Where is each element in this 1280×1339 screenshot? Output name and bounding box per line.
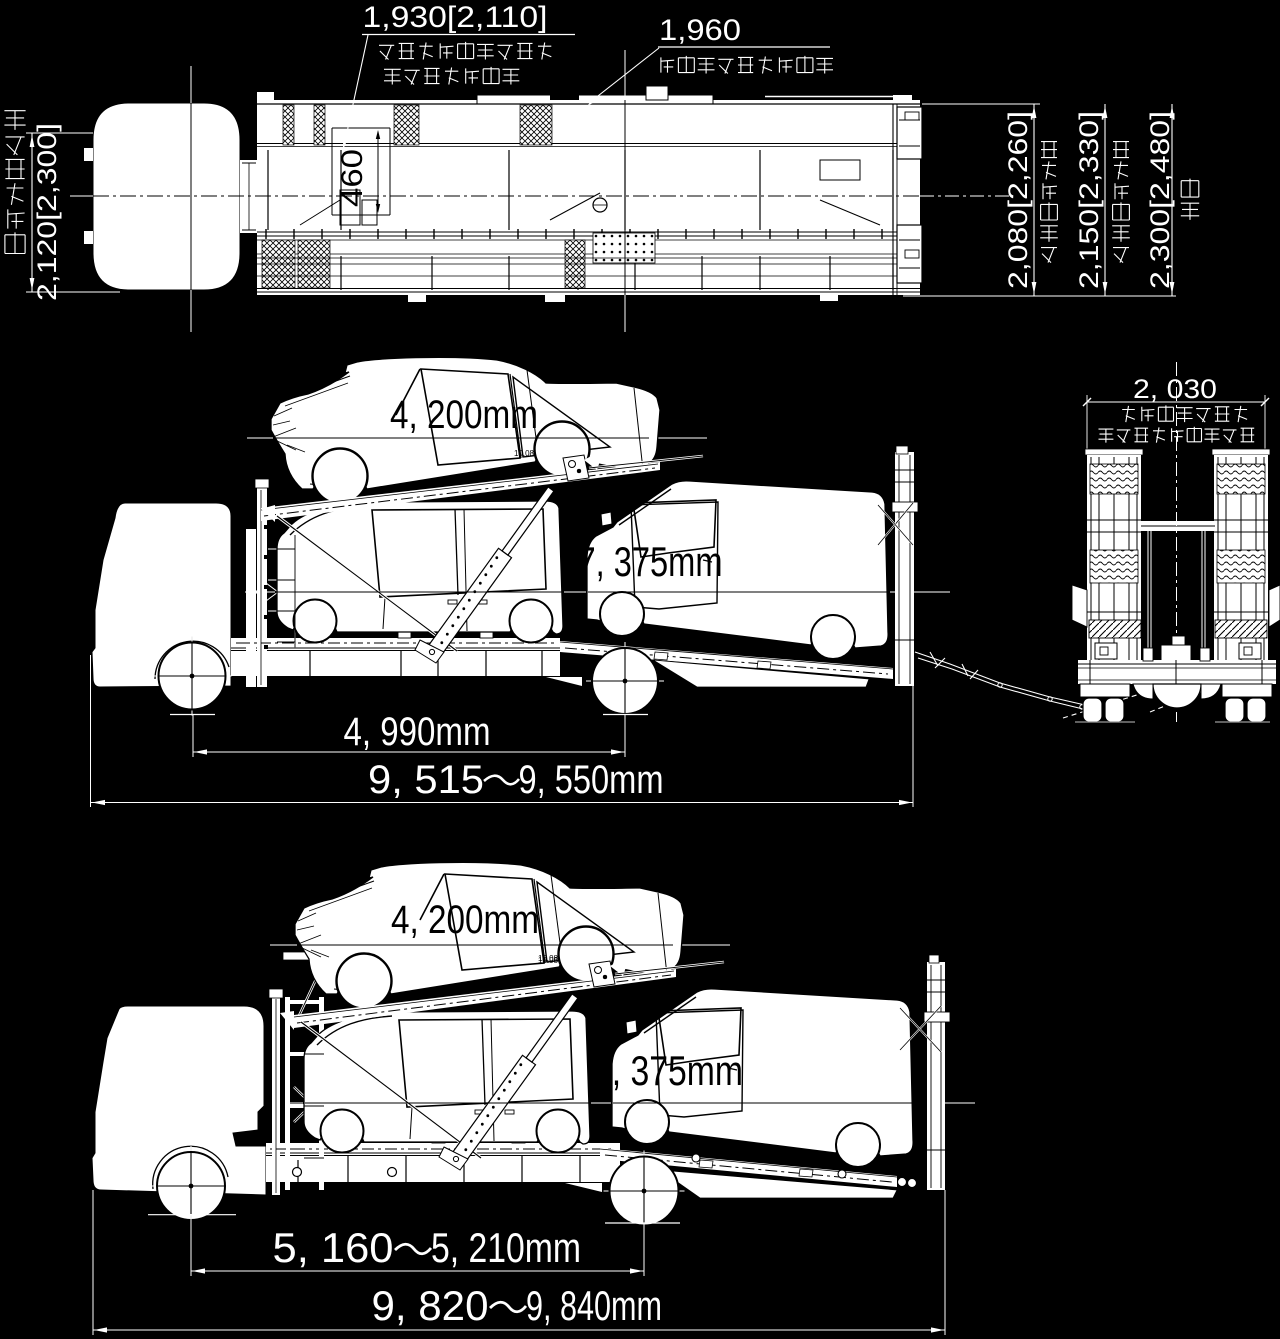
svg-text:10.08: 10.08 xyxy=(538,956,559,965)
svg-text:4, 200mm: 4, 200mm xyxy=(390,393,538,437)
svg-text:2,080[2,260]: 2,080[2,260] xyxy=(1003,111,1033,289)
svg-text:2,300[2,480]: 2,300[2,480] xyxy=(1145,111,1175,289)
svg-text:4, 200mm: 4, 200mm xyxy=(391,898,539,942)
svg-text:9, 550mm: 9, 550mm xyxy=(519,758,664,802)
svg-text:1,960: 1,960 xyxy=(659,14,741,47)
svg-text:4, 990mm: 4, 990mm xyxy=(344,710,491,754)
svg-text:5, 210mm: 5, 210mm xyxy=(431,1224,581,1271)
svg-text:2,150[2,330]: 2,150[2,330] xyxy=(1074,111,1104,289)
svg-text:7, 375mm: 7, 375mm xyxy=(578,538,723,585)
svg-text:2, 030: 2, 030 xyxy=(1133,374,1217,404)
svg-text:9, 515: 9, 515 xyxy=(368,758,484,802)
svg-text:1,930[2,110]: 1,930[2,110] xyxy=(363,1,548,34)
svg-text:9, 840mm: 9, 840mm xyxy=(526,1282,662,1329)
svg-text:9, 820: 9, 820 xyxy=(372,1282,489,1329)
svg-text:2,120[2,300]: 2,120[2,300] xyxy=(32,123,62,301)
svg-text:5, 160: 5, 160 xyxy=(273,1224,394,1271)
svg-text:7, 375mm: 7, 375mm xyxy=(593,1047,743,1094)
